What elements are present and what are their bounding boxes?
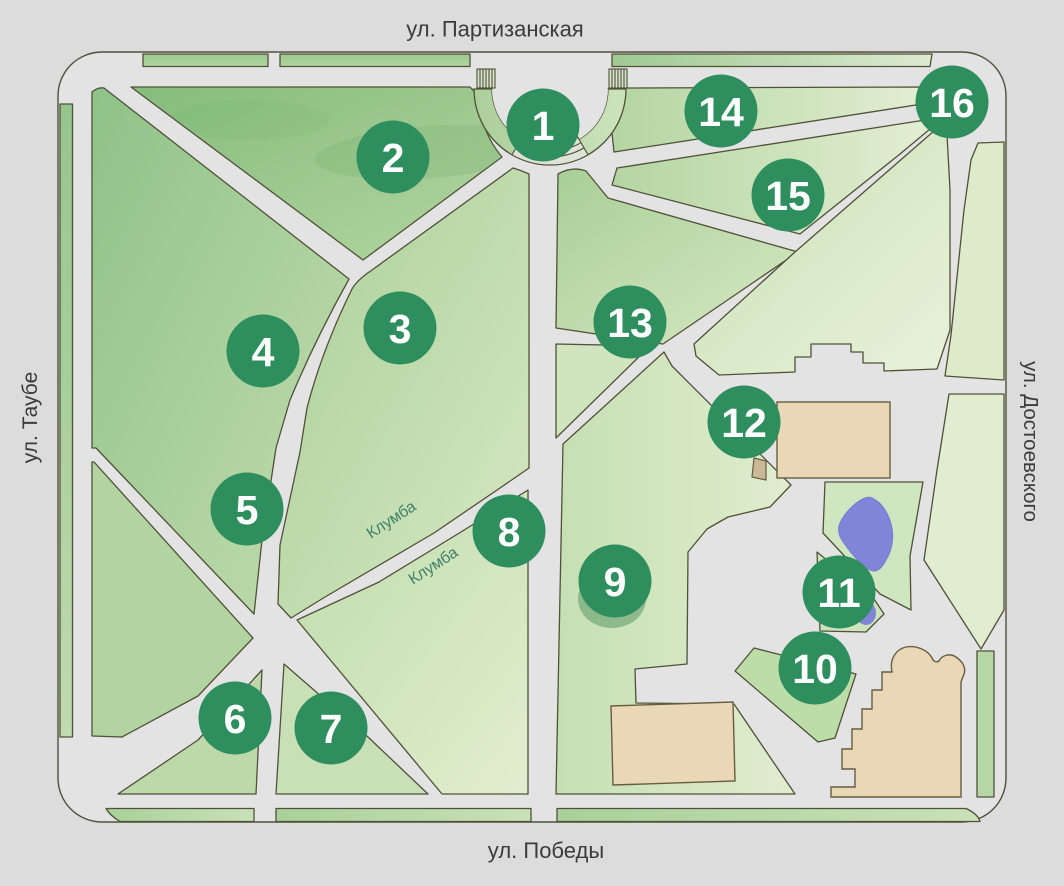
svg-text:ул. Таубе: ул. Таубе: [19, 372, 42, 464]
svg-text:ул. Достоевского: ул. Достоевского: [1019, 361, 1042, 522]
svg-text:2: 2: [382, 135, 405, 181]
svg-text:10: 10: [792, 646, 838, 692]
svg-text:3: 3: [389, 306, 412, 352]
svg-text:11: 11: [817, 570, 860, 616]
svg-text:13: 13: [607, 300, 653, 346]
svg-text:7: 7: [320, 706, 343, 752]
svg-text:12: 12: [721, 400, 767, 446]
svg-text:1: 1: [532, 103, 555, 149]
svg-text:8: 8: [498, 509, 521, 555]
svg-text:9: 9: [604, 559, 627, 605]
svg-text:14: 14: [698, 89, 744, 135]
svg-text:ул. Партизанская: ул. Партизанская: [406, 17, 583, 42]
svg-text:ул. Победы: ул. Победы: [488, 838, 604, 863]
svg-text:5: 5: [236, 487, 259, 533]
svg-text:6: 6: [224, 696, 247, 742]
svg-text:16: 16: [929, 80, 975, 126]
svg-text:4: 4: [252, 329, 275, 375]
svg-text:15: 15: [765, 173, 811, 219]
